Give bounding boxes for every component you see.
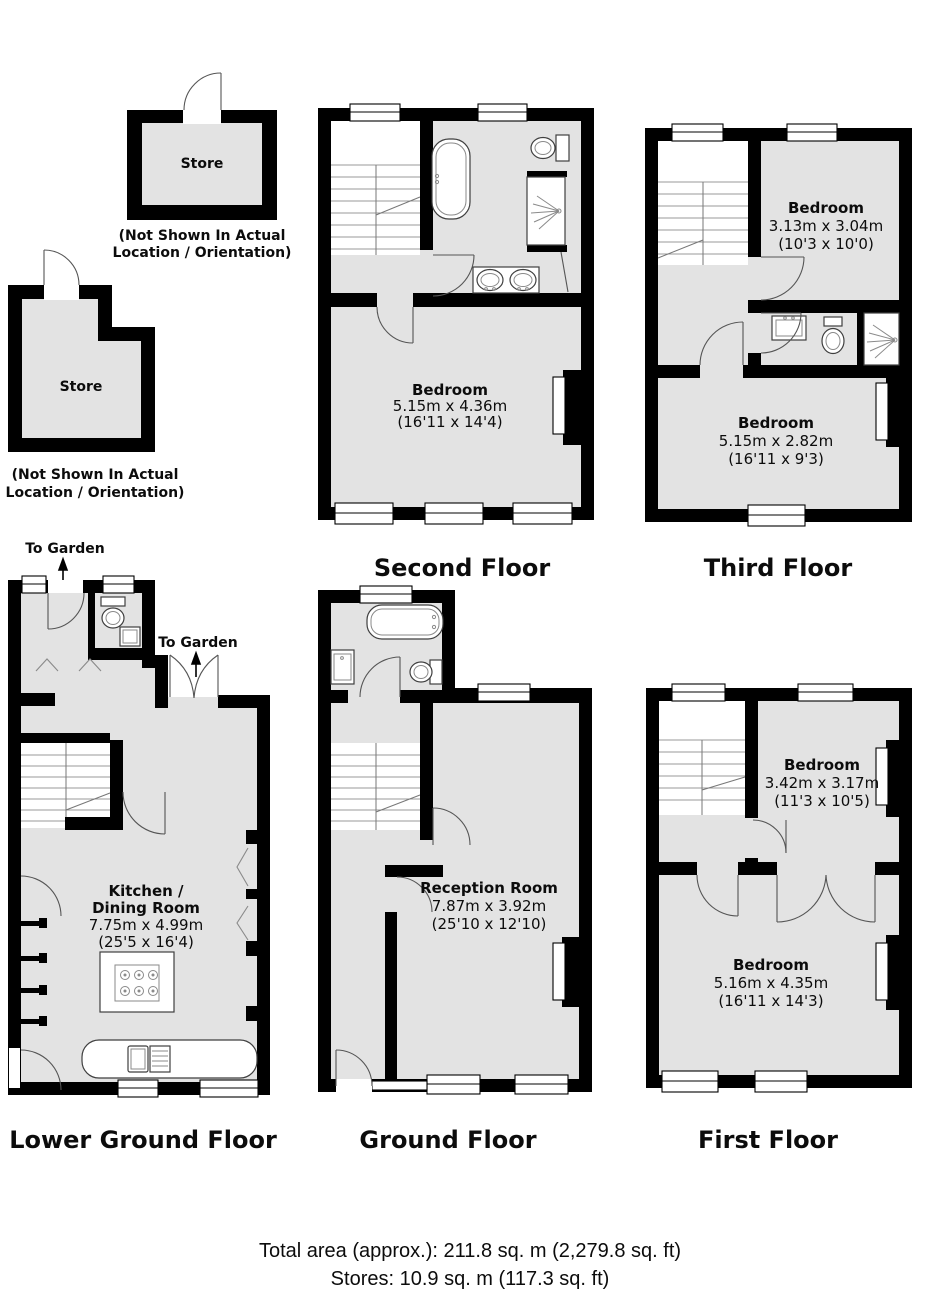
shower-icon <box>527 177 565 245</box>
room-name: Bedroom <box>738 414 814 432</box>
to-garden-label: To Garden <box>25 541 105 557</box>
store-note-line2: Location / Orientation) <box>113 245 292 261</box>
shower-icon <box>864 313 899 365</box>
kitchen-island-icon <box>100 952 174 1012</box>
toilet-icon <box>822 317 844 354</box>
store-unit-2: Store <box>8 250 155 452</box>
store-note-line1: (Not Shown In Actual <box>119 228 286 244</box>
floor-title-third: Third Floor <box>704 554 853 582</box>
second-floor-plan: Bedroom 5.15m x 4.36m (16'11 x 14'4) <box>318 104 594 524</box>
room-size-imperial: (25'5 x 16'4) <box>98 933 194 951</box>
room-size-metric: 7.87m x 3.92m <box>432 897 546 915</box>
lower-ground-floor-plan: To Garden To Garden <box>8 541 270 1097</box>
room-name: Kitchen / <box>108 882 184 900</box>
third-floor-plan: Bedroom 3.13m x 3.04m (10'3 x 10'0) Bedr… <box>645 124 912 526</box>
room-size-imperial: (25'10 x 12'10) <box>432 915 547 933</box>
room-size-imperial: (16'11 x 14'4) <box>397 413 502 431</box>
room-size-imperial: (11'3 x 10'5) <box>774 792 870 810</box>
to-garden-arrow-icon <box>59 559 67 583</box>
room-size-metric: 5.15m x 2.82m <box>719 432 833 450</box>
store-label: Store <box>181 156 224 172</box>
room-name: Bedroom <box>788 199 864 217</box>
to-garden-arrow-icon <box>192 653 200 677</box>
floor-title-lower-ground: Lower Ground Floor <box>9 1126 277 1154</box>
store-label: Store <box>60 379 103 395</box>
door-threshold <box>168 697 218 708</box>
store-note-line2: Location / Orientation) <box>6 485 185 501</box>
front-door-opening <box>336 1079 372 1092</box>
sink-icon <box>331 650 354 684</box>
door-opening <box>183 110 221 124</box>
bathtub-icon <box>367 605 443 639</box>
store-note-line1: (Not Shown In Actual <box>12 467 179 483</box>
store-room-floor <box>22 299 141 438</box>
room-size-imperial: (10'3 x 10'0) <box>778 235 874 253</box>
total-area-text: Total area (approx.): 211.8 sq. m (2,279… <box>259 1240 681 1262</box>
room-size-imperial: (16'11 x 14'3) <box>718 992 823 1010</box>
room-size-metric: 3.13m x 3.04m <box>769 217 883 235</box>
floorplan-drawing: Store (Not Shown In Actual Location / Or… <box>0 0 940 1301</box>
room-size-metric: 7.75m x 4.99m <box>89 916 203 934</box>
to-garden-label: To Garden <box>158 635 238 651</box>
store-unit-1: Store <box>127 73 277 220</box>
door-icon <box>44 250 79 285</box>
floor-title-second: Second Floor <box>374 554 550 582</box>
room-size-metric: 5.16m x 4.35m <box>714 974 828 992</box>
toilet-icon <box>410 660 442 684</box>
bathtub-icon <box>432 139 470 219</box>
door-opening <box>44 285 79 300</box>
floor-title-first: First Floor <box>698 1126 838 1154</box>
room-name-line2: Dining Room <box>92 899 200 917</box>
room-size-metric: 3.42m x 3.17m <box>765 774 879 792</box>
stores-area-text: Stores: 10.9 sq. m (117.3 sq. ft) <box>331 1268 610 1290</box>
floor-title-ground: Ground Floor <box>359 1126 536 1154</box>
front-door-opening <box>48 580 83 593</box>
kitchen-counter-sink-icon <box>82 1040 257 1078</box>
room-name: Bedroom <box>784 756 860 774</box>
sink-icon <box>120 627 140 646</box>
double-sink-vanity-icon <box>473 267 539 293</box>
room-size-imperial: (16'11 x 9'3) <box>728 450 824 468</box>
room-name: Bedroom <box>733 956 809 974</box>
ground-floor-plan: Reception Room 7.87m x 3.92m (25'10 x 12… <box>318 586 592 1094</box>
toilet-icon <box>101 597 125 628</box>
toilet-icon <box>531 135 569 161</box>
room-name: Reception Room <box>420 879 558 897</box>
door-icon <box>184 73 221 110</box>
side-door-opening <box>9 1048 20 1088</box>
first-floor-plan: Bedroom 3.42m x 3.17m (11'3 x 10'5) Bedr… <box>646 684 912 1092</box>
floorplan-page: Store (Not Shown In Actual Location / Or… <box>0 0 940 1301</box>
